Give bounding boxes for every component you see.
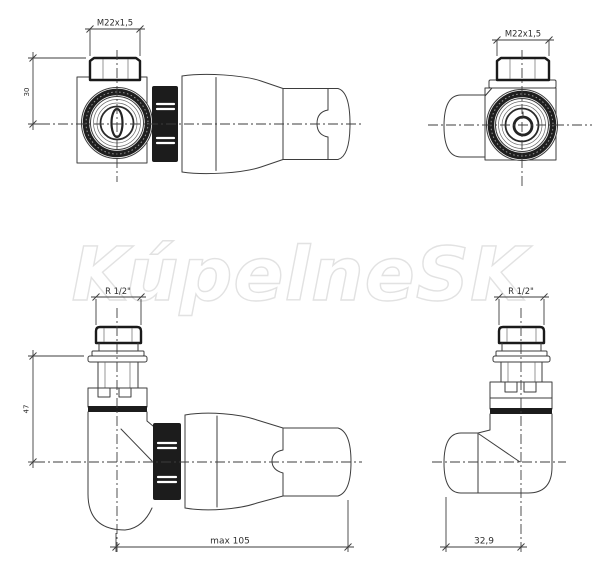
dimension-length-bottom-left: max 105	[110, 500, 354, 552]
dimension-width-bottom-right: 32,9	[440, 497, 527, 552]
outlet-pipe	[444, 95, 485, 157]
view-bottom-right-elbow-valve: R 1/2" 32,9	[432, 286, 566, 552]
elbow-body	[88, 412, 153, 530]
upper-flange	[496, 351, 547, 356]
dimension-height-bottom-left: 47	[23, 350, 85, 468]
m22-thread-cap	[497, 58, 549, 80]
r12-thread-nipple	[96, 327, 141, 343]
thermostatic-head	[185, 413, 351, 510]
technical-drawing-page: KúpelneSK	[0, 0, 600, 579]
thread-size-label: R 1/2"	[508, 286, 534, 296]
height-label: 47	[23, 405, 31, 414]
thread-size-label: M22x1,5	[97, 18, 133, 28]
r12-thread-nipple	[499, 327, 544, 343]
elbow-body	[444, 414, 552, 493]
valve-technical-drawing: KúpelneSK	[0, 0, 600, 579]
view-top-right-corner-valve: M22x1,5	[428, 29, 592, 187]
knurled-collar	[153, 423, 181, 500]
width-label: 32,9	[474, 537, 494, 547]
outlet-pipe	[444, 433, 478, 493]
lower-flange	[493, 356, 550, 362]
view-bottom-left-elbow-valve: R 1/2" 47 max 105	[23, 286, 363, 552]
length-label: max 105	[210, 537, 250, 547]
thread-size-label: R 1/2"	[105, 286, 131, 296]
m22-thread-cap	[90, 58, 140, 80]
union-hex	[88, 388, 147, 412]
height-label: 30	[23, 88, 31, 97]
thread-size-label: M22x1,5	[505, 29, 541, 39]
view-top-left-corner-valve: M22x1,5 30	[23, 18, 362, 183]
dimension-m22-top-right: M22x1,5	[492, 29, 554, 57]
upper-flange	[92, 351, 144, 356]
lower-flange	[88, 356, 147, 362]
dimension-m22-top-left: M22x1,5	[85, 18, 145, 57]
